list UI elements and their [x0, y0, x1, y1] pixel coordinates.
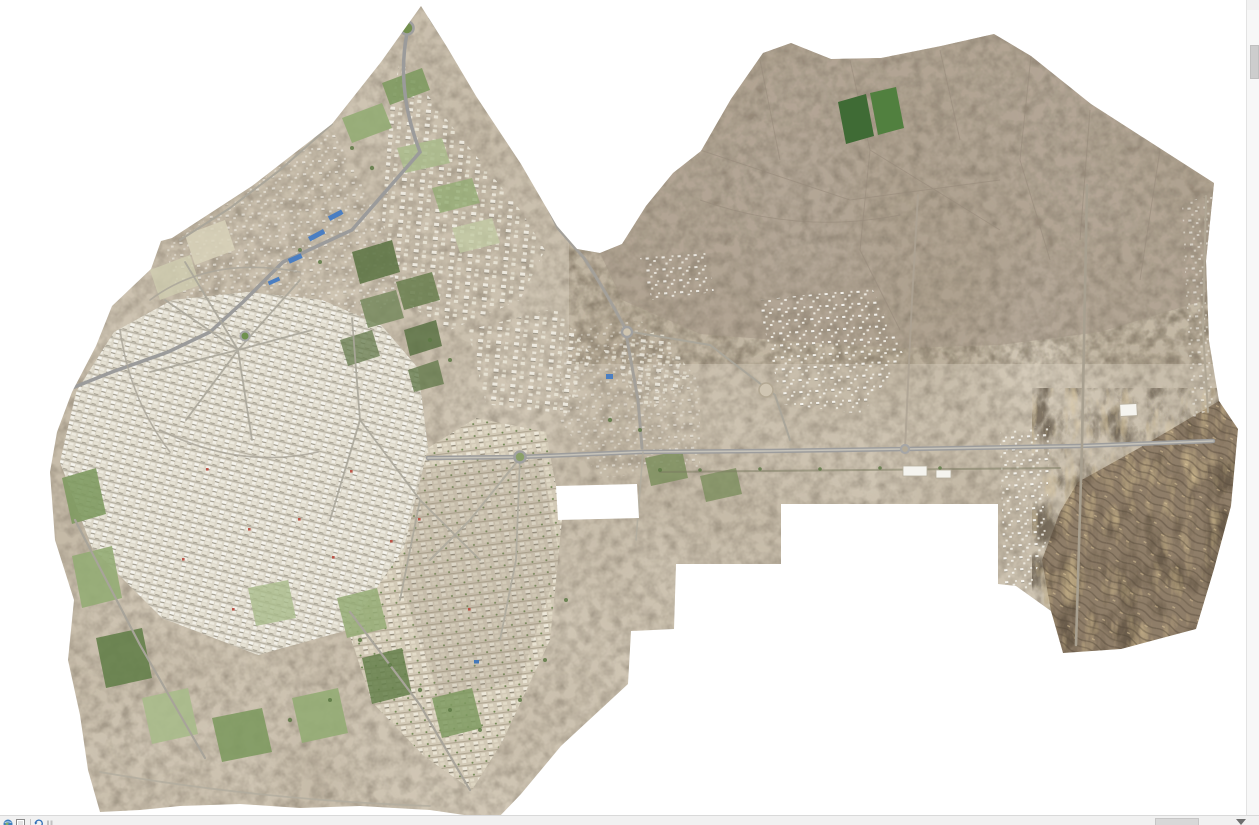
globe-data-view-icon[interactable]	[4, 820, 13, 825]
orthomosaic-image[interactable]	[0, 0, 1246, 815]
vertical-scrollbar-thumb[interactable]	[1250, 45, 1259, 79]
page-layout-view-icon[interactable]	[17, 820, 25, 825]
map-window	[0, 0, 1259, 825]
bottom-scrollbar-bar	[0, 815, 1259, 825]
northeast-farmland-region	[600, 34, 1214, 348]
refresh-icon[interactable]	[35, 820, 43, 825]
pause-drawing-icon[interactable]	[47, 821, 53, 825]
map-canvas[interactable]	[0, 0, 1246, 815]
scrollbar-corner	[1247, 0, 1259, 10]
view-toggle-buttons[interactable]	[1, 817, 63, 825]
vertical-scrollbar[interactable]	[1246, 0, 1259, 815]
horizontal-scrollbar-thumb[interactable]	[1155, 818, 1199, 825]
scrollbar-arrow-icon[interactable]	[1236, 819, 1246, 825]
mosaic-gap	[556, 484, 639, 520]
northeast-village	[640, 250, 714, 300]
